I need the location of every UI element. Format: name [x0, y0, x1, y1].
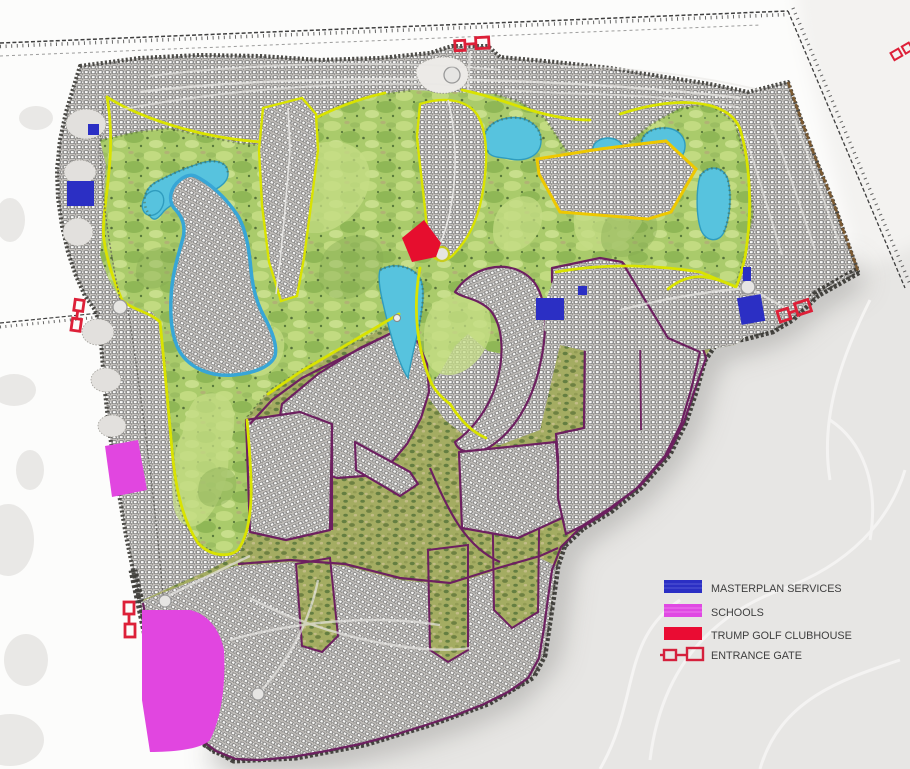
svg-text:TRUMP GOLF CLUBHOUSE: TRUMP GOLF CLUBHOUSE: [711, 630, 852, 642]
svg-text:ENTRANCE GATE: ENTRANCE GATE: [711, 650, 802, 662]
svg-text:SCHOOLS: SCHOOLS: [711, 607, 764, 619]
svg-text:MASTERPLAN SERVICES: MASTERPLAN SERVICES: [711, 583, 842, 595]
